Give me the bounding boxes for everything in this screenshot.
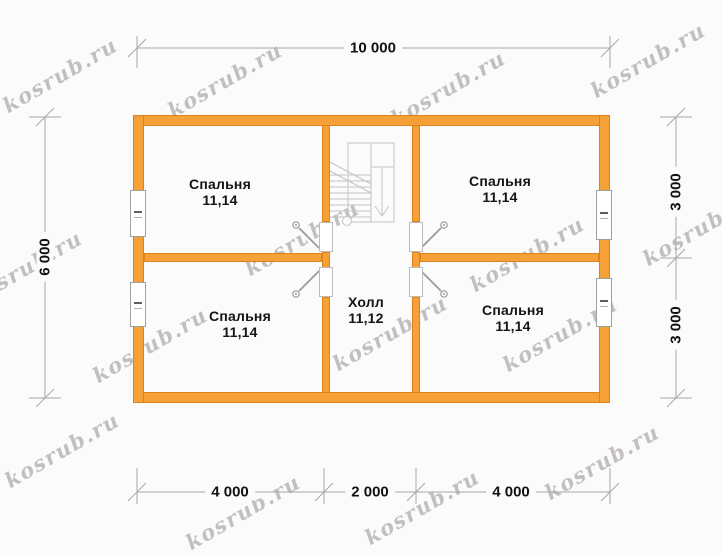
window-left-lower [130,282,146,327]
door-leaf-left-bottom [293,271,319,297]
staircase [330,143,394,226]
door-opening-left-top [319,222,333,252]
wall-hall-left-middle [322,252,330,268]
room-label-hall: Холл 11,12 [348,294,384,326]
wall-hall-left-lower [322,297,330,393]
dimension-bottom-left: 4 000 [205,484,255,501]
wall-exterior-left [133,115,144,403]
wall-exterior-right [599,115,610,403]
door-opening-right-top [409,222,423,252]
plan-linework [0,0,722,548]
dimension-right-top: 3 000 [668,167,685,217]
room-area: 11,14 [482,189,517,205]
room-label-bedroom-bottom-left: Спальня 11,14 [209,308,271,340]
door-leaf-right-bottom [421,271,447,297]
room-label-bedroom-top-right: Спальня 11,14 [469,173,531,205]
wall-hall-left-upper [322,125,330,222]
door-opening-left-bottom [319,267,333,297]
room-name: Спальня [469,173,531,189]
wall-interior-mid-right [420,253,599,262]
room-name: Холл [348,294,384,310]
floor-plan-canvas: kosrub.ru kosrub.ru kosrub.ru kosrub.ru … [0,0,722,548]
window-right-lower [596,278,612,327]
dimension-top-total: 10 000 [344,40,402,57]
room-area: 11,14 [495,318,530,334]
wall-interior-mid-left [144,253,322,262]
wall-exterior-bottom [133,392,610,403]
wall-hall-right-middle [412,252,420,268]
wall-hall-right-upper [412,125,420,222]
room-area: 11,14 [202,192,237,208]
dimension-right-bottom: 3 000 [668,300,685,350]
window-right-upper [596,190,612,240]
dimension-left-total: 6 000 [37,232,54,282]
room-name: Спальня [189,176,251,192]
door-opening-right-bottom [409,267,423,297]
dimension-bottom-center: 2 000 [345,484,395,501]
dimension-lines [29,36,692,504]
door-leaf-right-top [421,222,447,248]
wall-exterior-top [133,115,610,126]
wall-hall-right-lower [412,297,420,393]
room-area: 11,14 [222,324,257,340]
door-leaf-left-top [293,222,319,248]
room-name: Спальня [482,302,544,318]
room-name: Спальня [209,308,271,324]
window-left-upper [130,190,146,237]
dimension-bottom-right: 4 000 [486,484,536,501]
room-area: 11,12 [348,310,383,326]
room-label-bedroom-top-left: Спальня 11,14 [189,176,251,208]
room-label-bedroom-bottom-right: Спальня 11,14 [482,302,544,334]
